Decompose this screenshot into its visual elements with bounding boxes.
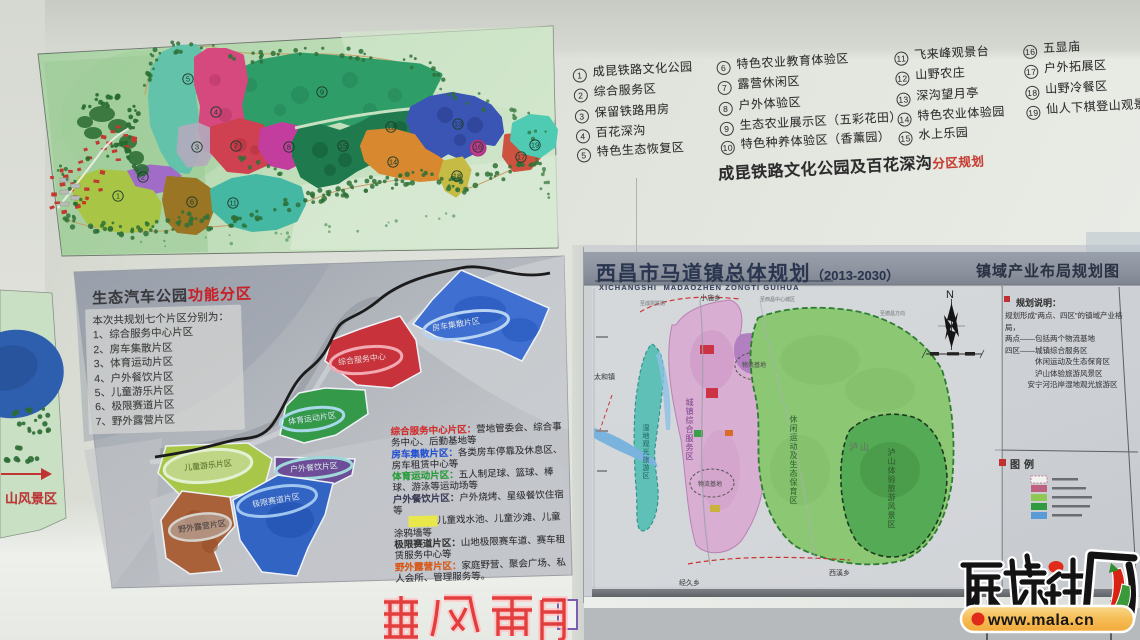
svg-text:8: 8 (287, 143, 291, 152)
svg-text:11: 11 (229, 199, 237, 208)
svg-text:4: 4 (214, 108, 218, 117)
svg-text:19: 19 (531, 141, 539, 150)
svg-text:16: 16 (474, 143, 482, 152)
svg-text:3: 3 (195, 143, 199, 152)
svg-text:14: 14 (389, 158, 397, 167)
svg-text:2: 2 (141, 173, 145, 182)
svg-text:15: 15 (339, 142, 347, 151)
svg-text:9: 9 (320, 88, 324, 97)
svg-text:1: 1 (116, 192, 120, 201)
svg-text:N: N (946, 289, 954, 301)
svg-text:5: 5 (186, 75, 190, 84)
svg-text:17: 17 (517, 153, 525, 162)
svg-text:13: 13 (454, 120, 462, 129)
svg-text:7: 7 (234, 142, 238, 151)
svg-text:6: 6 (190, 198, 194, 207)
svg-text:www.mala.cn: www.mala.cn (987, 612, 1094, 629)
svg-text:12: 12 (387, 123, 395, 132)
svg-text:18: 18 (453, 172, 461, 181)
